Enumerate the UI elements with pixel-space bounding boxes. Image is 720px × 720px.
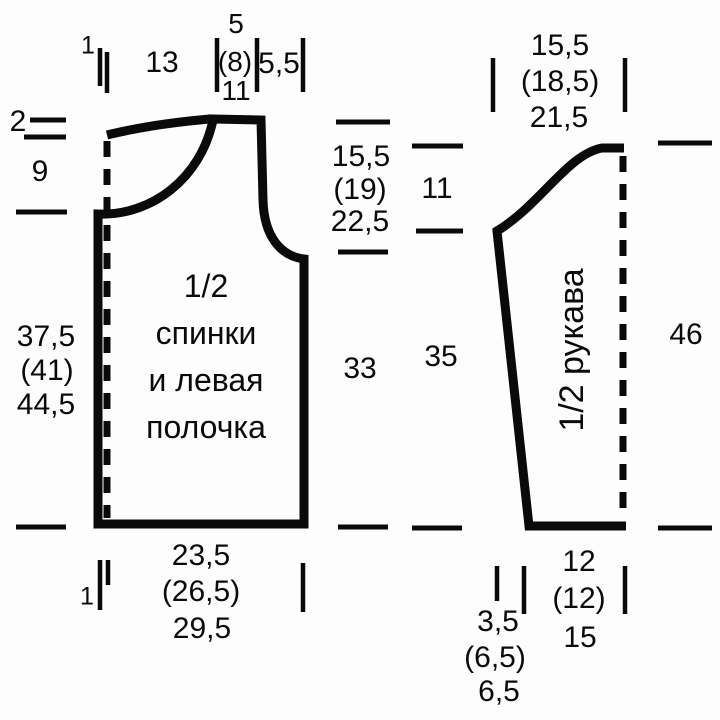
measure-hem-width-size2: (26,5) [162,577,240,607]
measure-center-offset-bottom: 1 [80,585,94,610]
measure-sleeve-top-size3: 21,5 [530,103,588,133]
measure-cuff-slant-size1: 3,5 [477,607,519,637]
measure-side-seam-length: 33 [343,354,376,384]
measure-back-half-width: 13 [145,48,178,78]
sleeve-piece-title: 1/2 рукава [555,268,589,431]
measure-armhole-depth-size1: 15,5 [332,142,390,172]
back-neckline-curve [107,119,210,135]
measure-sleeve-top-size1: 15,5 [531,31,589,61]
measure-hem-width-size3: 29,5 [173,614,231,644]
body-piece-title: 1/2 спинки и левая полочка [146,263,266,451]
body-piece-title-line4: полочка [146,404,266,451]
measure-shoulder-size3: 11 [221,77,250,105]
measure-sleeve-cap-height: 11 [421,174,452,204]
body-piece-title-line2: спинки [146,310,266,357]
measure-front-length-size3: 44,5 [17,390,75,420]
measure-front-neck-depth: 9 [32,157,49,187]
measure-center-offset-top: 1 [81,34,95,59]
body-piece-title-line3: и левая [146,357,266,404]
measure-front-length-size2: (41) [20,356,73,386]
measure-armhole-depth-size2: (19) [333,175,386,205]
measure-cuff-slant-size2: (6,5) [464,643,526,673]
measure-sleeve-top-size2: (18,5) [521,67,599,97]
measure-cuff-width-size1: 12 [562,547,595,577]
measure-armhole-depth-size3: 22,5 [331,207,389,237]
measure-cuff-slant-size3: 6,5 [478,677,520,707]
body-piece-title-line1: 1/2 [146,263,266,310]
measure-front-length-size1: 37,5 [17,322,75,352]
measure-underarm-seam: 35 [424,342,457,372]
measure-sleeve-total-length: 46 [669,320,702,350]
pattern-schematic: 1 13 5 (8) 11 5,5 15,5 (18,5) 21,5 2 9 3… [0,0,720,720]
measure-hem-width-size1: 23,5 [172,541,230,571]
measure-back-neck-depth: 2 [10,107,27,137]
measure-shoulder-size1: 5 [228,10,244,38]
measure-shoulder-size2: (8) [218,48,252,76]
measure-armhole-top-width: 5,5 [258,49,300,79]
measure-cuff-width-size3: 15 [563,623,596,653]
measure-cuff-width-size2: (12) [552,584,605,614]
